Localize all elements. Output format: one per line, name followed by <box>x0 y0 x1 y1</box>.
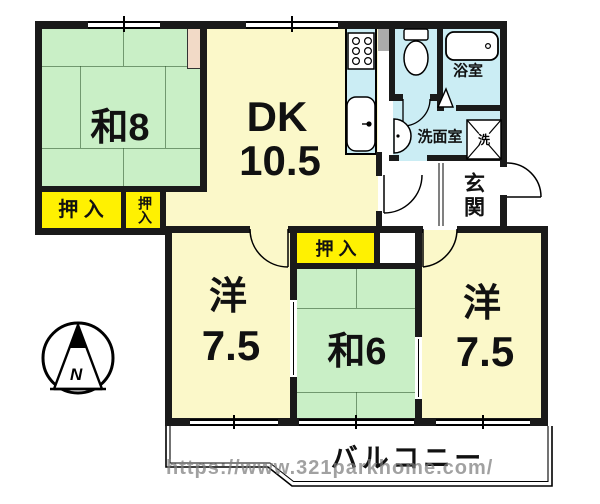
floorplan-canvas: 洗 N 和8 DK 10.5 浴室 洗面室 玄関 押 入 押入 押 入 洋 7.… <box>0 0 600 504</box>
compass-n-label: N <box>70 365 83 384</box>
sliding-door <box>418 339 419 397</box>
label-closet-mid: 押 入 <box>315 240 356 258</box>
wall <box>541 228 548 426</box>
wall <box>437 27 443 111</box>
door-entrance <box>507 163 541 197</box>
window-tick <box>291 16 293 32</box>
tatami-line <box>123 148 124 188</box>
label-dk-size: 10.5 <box>239 140 321 182</box>
label-western-right-size: 7.5 <box>456 331 514 373</box>
sliding-door <box>293 302 294 375</box>
tatami-line <box>80 66 81 148</box>
label-dk: DK <box>247 96 308 138</box>
wall <box>200 21 207 192</box>
wall <box>427 155 503 161</box>
label-washroom: 洗面室 <box>417 130 462 145</box>
label-western-right: 洋 <box>463 285 501 323</box>
label-bathroom: 浴室 <box>453 64 483 79</box>
wall <box>500 21 507 167</box>
wall <box>160 190 166 230</box>
label-closet-narrow: 押入 <box>138 196 152 224</box>
room-western-right <box>419 230 543 422</box>
label-entrance: 玄関 <box>463 172 484 220</box>
window-tick <box>123 16 125 32</box>
north-compass: N <box>43 323 113 393</box>
wall <box>290 263 421 269</box>
watermark-url: https://www.321parkhome.com/ <box>166 457 493 480</box>
window-tick <box>482 415 484 429</box>
kitchen-counter <box>345 27 377 155</box>
tatami-line <box>295 308 417 309</box>
wall <box>456 105 503 111</box>
door-dk-hall <box>384 175 422 213</box>
label-western-left-size: 7.5 <box>202 325 260 367</box>
room-dk-notch <box>164 188 207 230</box>
closet-small-white <box>377 228 417 267</box>
window-tick <box>355 415 357 429</box>
wall <box>121 190 126 230</box>
wall <box>457 226 548 233</box>
label-washitsu6: 和6 <box>327 333 386 371</box>
tatami-line <box>165 66 166 148</box>
wall <box>376 152 382 176</box>
window-tick <box>233 415 235 429</box>
wall <box>389 27 395 99</box>
wall <box>288 226 423 233</box>
tatami-line <box>356 265 357 308</box>
wall <box>35 228 172 235</box>
wall <box>165 226 250 233</box>
wall <box>374 226 380 269</box>
wall <box>35 21 42 235</box>
wall <box>389 155 399 161</box>
wall <box>165 228 172 426</box>
label-western-left: 洋 <box>209 278 247 316</box>
label-closet-wide: 押 入 <box>58 200 104 220</box>
wall <box>437 105 444 111</box>
room-toilet <box>393 27 438 98</box>
wall <box>389 94 403 101</box>
label-washitsu8: 和8 <box>90 109 149 147</box>
